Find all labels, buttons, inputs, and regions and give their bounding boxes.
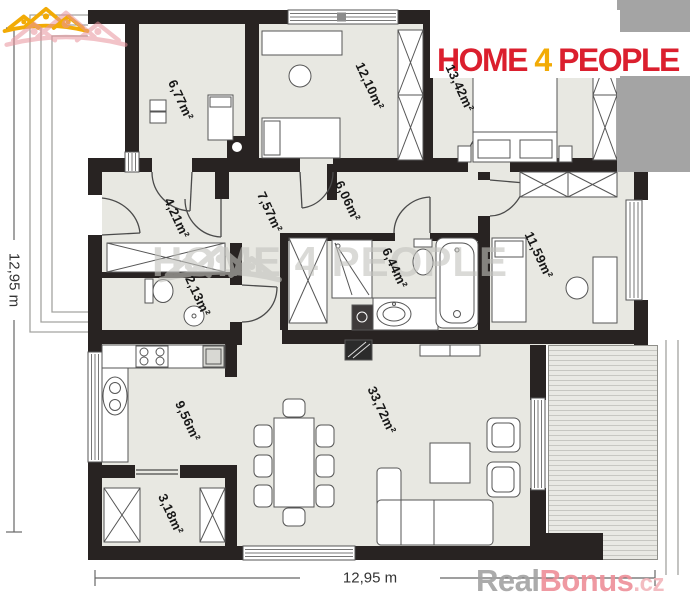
dining-table: [274, 418, 314, 507]
nightstand: [559, 146, 572, 162]
realbonus-houses-icon: [0, 0, 132, 52]
realbonus-bonus: Bonus: [539, 563, 633, 598]
window-living-bottom: [243, 546, 355, 560]
houses-watermark-icon: [150, 238, 290, 284]
dimension-left: 12,95 m: [6, 247, 23, 313]
coffee-table: [430, 443, 470, 483]
realbonus-real: Real: [476, 563, 539, 598]
desk-chair: [566, 277, 588, 299]
dimension-bottom: 12,95 m: [337, 570, 403, 587]
desk: [593, 257, 617, 323]
bath-sink: [373, 298, 438, 330]
kitchen-sink-unit: [203, 346, 224, 367]
wardrobe: [520, 172, 617, 197]
armchair: [487, 418, 520, 452]
window-living-terrace: [531, 398, 545, 490]
desk: [262, 31, 342, 55]
logo-wordmark: HOME 4 PEOPLE: [437, 42, 690, 79]
logo-backdrop: [617, 0, 690, 172]
wardrobe: [104, 488, 140, 542]
logo-word-4: 4: [534, 42, 550, 78]
window-left-small: [125, 152, 139, 172]
washing-machine: [352, 305, 373, 330]
plan-drawing: [0, 0, 690, 600]
stove: [136, 346, 168, 367]
nightstand: [458, 146, 471, 162]
logo-word-people: PEOPLE: [558, 42, 679, 78]
tv-bench: [420, 345, 480, 356]
realbonus-watermark: RealBonus.cz: [476, 563, 664, 599]
wardrobe: [200, 488, 225, 542]
window-kitchen: [88, 352, 102, 462]
floor-plan-image: HOME 4 PEOPLE HOME 4 PEOPLE 6,77m² 12,10…: [0, 0, 690, 600]
center-watermark: HOME 4 PEOPLE: [150, 238, 510, 286]
child-bed: [208, 95, 233, 140]
fireplace: [345, 340, 372, 360]
window-bedroom-right: [626, 200, 642, 300]
shelf: [150, 100, 166, 123]
wardrobe: [398, 30, 423, 160]
single-bed: [262, 118, 340, 158]
armchair: [487, 462, 520, 497]
double-sink: [103, 377, 127, 415]
realbonus-cz: .cz: [633, 570, 664, 597]
chimney-flue: [232, 142, 242, 152]
desk-chair: [289, 65, 311, 87]
window-top: [288, 10, 398, 24]
roof-outline-right: [666, 340, 678, 575]
double-bed: [473, 77, 557, 162]
roof-outline-left: [30, 15, 88, 332]
